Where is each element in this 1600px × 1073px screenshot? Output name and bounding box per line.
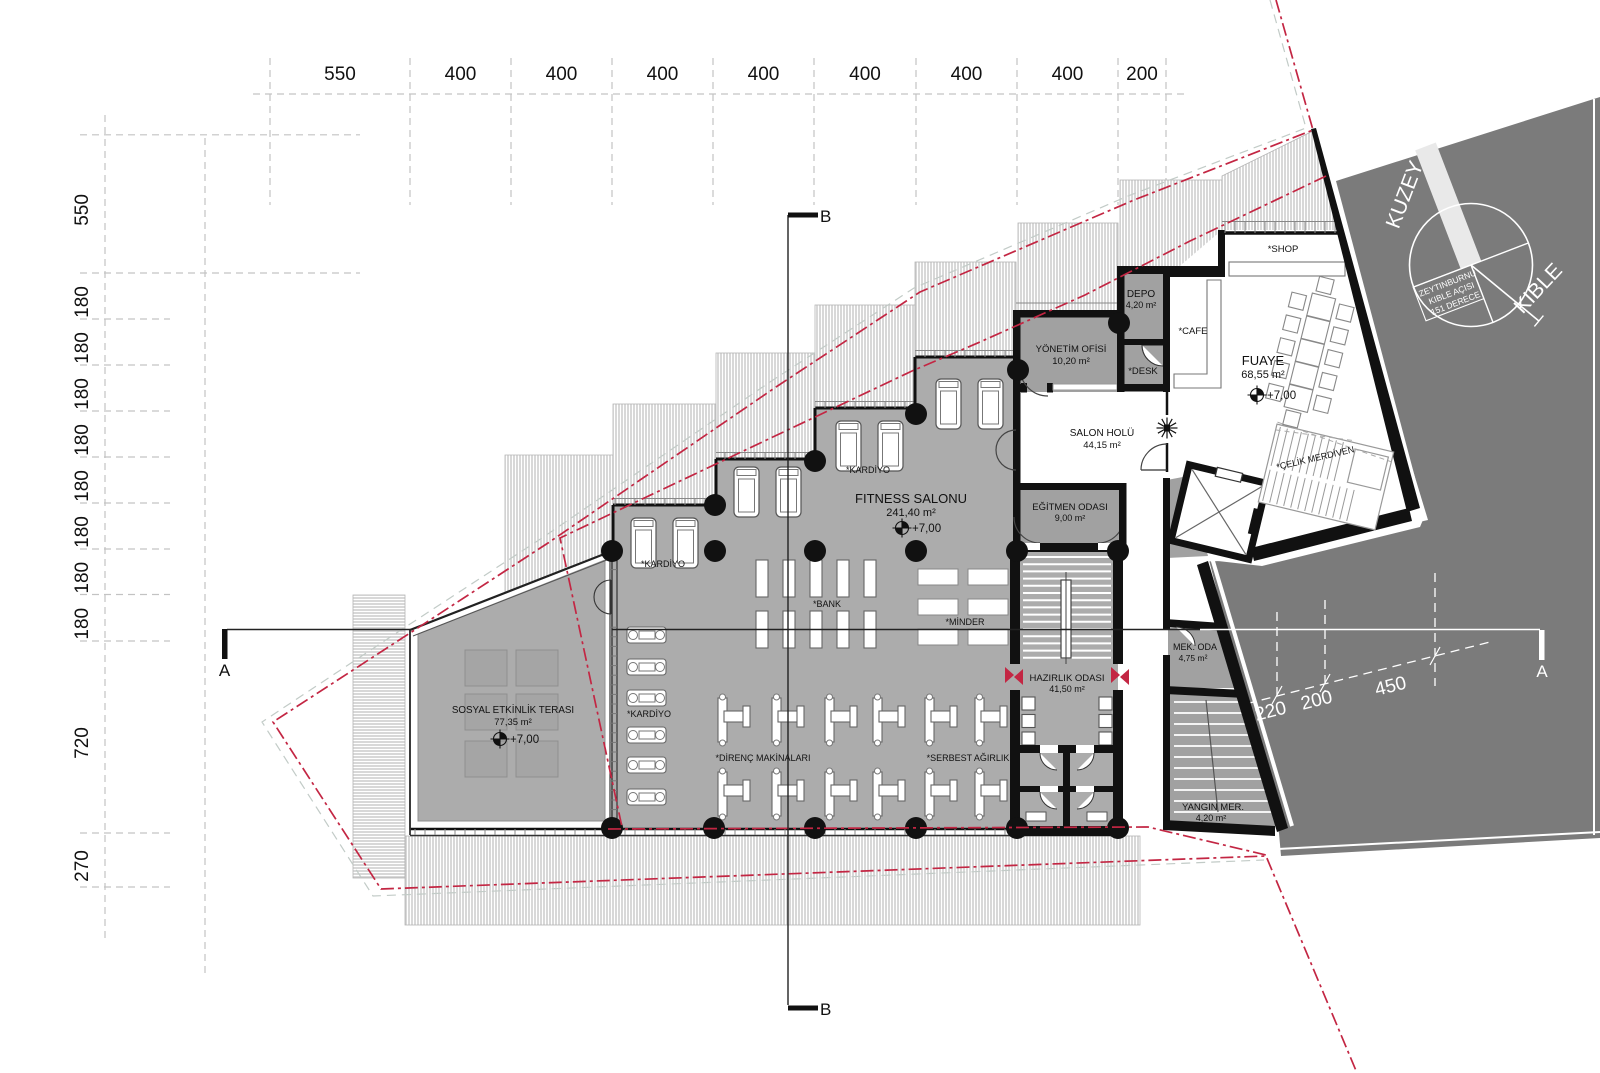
svg-text:180: 180: [72, 332, 93, 364]
svg-text:270: 270: [72, 850, 93, 882]
svg-text:YANGIN MER.: YANGIN MER.: [1182, 802, 1244, 813]
svg-text:550: 550: [324, 64, 356, 85]
svg-text:400: 400: [951, 64, 983, 85]
svg-text:*KARDİYO: *KARDİYO: [846, 465, 890, 475]
svg-text:*BANK: *BANK: [813, 599, 841, 609]
svg-text:*SERBEST AĞIRLIK: *SERBEST AĞIRLIK: [927, 753, 1010, 763]
svg-text:180: 180: [72, 516, 93, 548]
svg-text:180: 180: [72, 378, 93, 410]
svg-text:SOSYAL ETKİNLİK TERASI: SOSYAL ETKİNLİK TERASI: [452, 705, 574, 716]
svg-text:B: B: [820, 207, 831, 226]
svg-text:SALON HOLÜ: SALON HOLÜ: [1070, 427, 1134, 439]
svg-text:400: 400: [445, 64, 477, 85]
svg-text:180: 180: [72, 608, 93, 640]
svg-text:*KARDİYO: *KARDİYO: [627, 709, 671, 719]
svg-text:HAZIRLIK ODASI: HAZIRLIK ODASI: [1030, 673, 1105, 684]
svg-text:B: B: [820, 1000, 831, 1019]
svg-text:550: 550: [72, 194, 93, 226]
svg-text:180: 180: [72, 470, 93, 502]
svg-text:A: A: [1536, 662, 1548, 681]
svg-text:DEPO: DEPO: [1127, 289, 1156, 300]
svg-text:4,20 m²: 4,20 m²: [1126, 300, 1157, 310]
svg-text:A: A: [219, 661, 231, 680]
svg-text:*KARDİYO: *KARDİYO: [641, 559, 685, 569]
svg-text:+7,00: +7,00: [1267, 390, 1296, 402]
svg-text:FUAYE: FUAYE: [1242, 353, 1285, 368]
svg-text:YÖNETİM OFİSİ: YÖNETİM OFİSİ: [1036, 344, 1107, 355]
svg-text:200: 200: [1126, 64, 1158, 85]
svg-text:4,75 m²: 4,75 m²: [1179, 653, 1208, 663]
svg-text:FITNESS SALONU: FITNESS SALONU: [855, 491, 967, 506]
svg-text:720: 720: [72, 727, 93, 759]
svg-text:400: 400: [748, 64, 780, 85]
svg-text:180: 180: [72, 286, 93, 318]
svg-text:10,20 m²: 10,20 m²: [1052, 356, 1090, 367]
svg-text:77,35 m²: 77,35 m²: [494, 717, 532, 728]
svg-text:41,50 m²: 41,50 m²: [1049, 684, 1085, 694]
svg-text:9,00 m²: 9,00 m²: [1055, 513, 1086, 523]
svg-text:400: 400: [546, 64, 578, 85]
svg-text:+7,00: +7,00: [510, 734, 539, 746]
svg-text:*SHOP: *SHOP: [1268, 244, 1299, 255]
svg-text:*DİRENÇ MAKİNALARI: *DİRENÇ MAKİNALARI: [715, 753, 810, 763]
svg-text:EĞİTMEN ODASI: EĞİTMEN ODASI: [1032, 502, 1107, 513]
svg-text:4,20 m²: 4,20 m²: [1196, 813, 1227, 823]
svg-text:*MİNDER: *MİNDER: [945, 617, 985, 627]
svg-text:44,15 m²: 44,15 m²: [1083, 440, 1121, 451]
svg-text:*CAFE: *CAFE: [1178, 326, 1207, 337]
svg-text:+7,00: +7,00: [912, 523, 941, 535]
svg-text:400: 400: [1052, 64, 1084, 85]
svg-text:MEK. ODA: MEK. ODA: [1173, 642, 1217, 652]
svg-text:68,55 m²: 68,55 m²: [1241, 369, 1285, 381]
svg-text:*DESK: *DESK: [1128, 366, 1158, 377]
svg-text:180: 180: [72, 562, 93, 594]
svg-text:241,40 m²: 241,40 m²: [886, 507, 936, 519]
svg-text:400: 400: [849, 64, 881, 85]
svg-text:400: 400: [647, 64, 679, 85]
svg-text:180: 180: [72, 424, 93, 456]
